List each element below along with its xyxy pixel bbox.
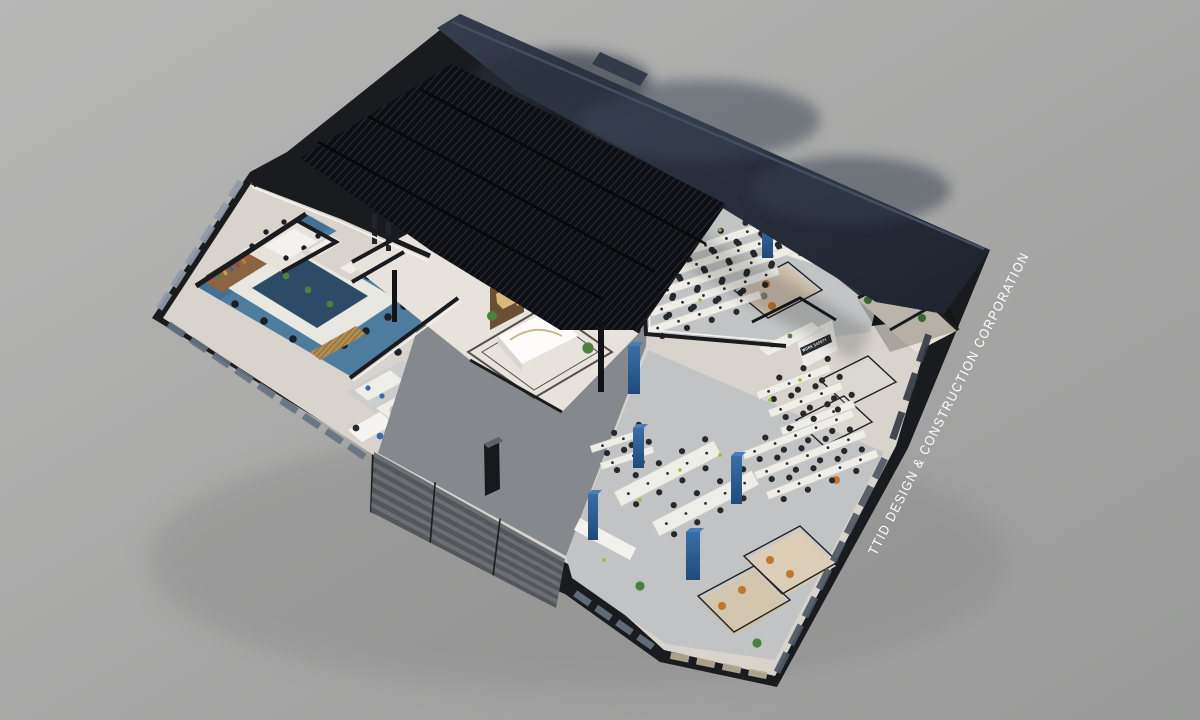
roof-texture: [750, 156, 950, 224]
office-chair: [835, 406, 841, 412]
pod-chair-tan: [718, 602, 726, 610]
desk-monitor: [660, 308, 663, 311]
office-chair: [702, 436, 708, 442]
office-chair: [853, 468, 859, 474]
blue-column: [633, 428, 644, 468]
render-canvas: WORK SAFETY: [0, 0, 1200, 720]
desk-monitor: [835, 418, 838, 421]
desk-monitor: [777, 490, 780, 493]
blue-column: [588, 494, 598, 540]
sofa-cushion: [365, 385, 370, 390]
office-chair: [837, 374, 843, 380]
pod-chair-tan: [786, 570, 794, 578]
office-chair: [819, 377, 825, 383]
office-chair: [769, 261, 775, 267]
office-chair: [783, 414, 789, 420]
desk-plant-accent: [638, 498, 642, 502]
office-chair: [694, 490, 700, 496]
desk-monitor: [815, 426, 818, 429]
desk-monitor: [832, 410, 835, 413]
office-chair: [786, 425, 792, 431]
office-chair: [611, 430, 617, 436]
office-chair: [795, 387, 801, 393]
desk-monitor: [774, 442, 777, 445]
desk-monitor: [665, 522, 668, 525]
desk-plant-accent: [718, 228, 722, 232]
office-chair: [798, 445, 804, 451]
desk-monitor: [656, 327, 659, 330]
office-chair: [614, 467, 620, 473]
meeting-chair: [283, 255, 288, 260]
office-chair: [666, 312, 672, 318]
desk-monitor: [740, 299, 743, 302]
office-chair: [702, 465, 708, 471]
office-chair: [835, 456, 841, 462]
office-chair: [633, 472, 639, 478]
desk-monitor: [808, 374, 811, 377]
desk-monitor: [746, 230, 749, 233]
sofa-cushion: [379, 393, 384, 398]
desk-monitor: [839, 466, 842, 469]
desk-chair: [353, 425, 360, 432]
office-chair: [849, 392, 855, 398]
desk-monitor: [622, 437, 625, 440]
desk-monitor: [786, 462, 789, 465]
boardroom-chair: [289, 335, 297, 343]
desk-monitor: [698, 313, 701, 316]
desk-monitor: [820, 392, 823, 395]
pergola-post: [598, 322, 604, 392]
office-chair: [762, 435, 768, 441]
office-chair: [788, 393, 794, 399]
office-chair: [810, 465, 816, 471]
desk-monitor: [601, 444, 604, 447]
office-chair: [679, 448, 685, 454]
desk-monitor: [818, 474, 821, 477]
office-chair: [694, 519, 700, 525]
desk-monitor: [758, 242, 761, 245]
facade-plant: [635, 581, 644, 590]
desk-monitor: [685, 512, 688, 515]
office-chair: [831, 395, 837, 401]
desk-monitor: [806, 454, 809, 457]
desk-plant-accent: [678, 468, 682, 472]
desk-monitor: [704, 502, 707, 505]
desk-monitor: [687, 282, 690, 285]
office-chair: [715, 296, 721, 302]
office-chair: [717, 478, 723, 484]
facade-plant: [752, 638, 761, 647]
office-chair: [805, 437, 811, 443]
reception-plant: [582, 342, 593, 353]
office-chair: [817, 457, 823, 463]
office-chair: [824, 401, 830, 407]
office-chair: [781, 496, 787, 502]
office-chair: [656, 489, 662, 495]
desk-monitor: [765, 470, 768, 473]
office-chair: [633, 501, 639, 507]
office-chair: [847, 426, 853, 432]
office-chair: [684, 325, 690, 331]
desk-monitor: [702, 294, 705, 297]
office-chair: [733, 239, 739, 245]
meeting-chair: [263, 229, 268, 234]
office-chair: [691, 304, 697, 310]
blue-desk-chair: [377, 433, 384, 440]
counter-plant: [788, 334, 793, 339]
office-chair: [750, 250, 756, 256]
office-chair: [829, 477, 835, 483]
desk-monitor: [779, 408, 782, 411]
office-chair: [656, 460, 662, 466]
office-chair: [769, 476, 775, 482]
office-chair: [776, 375, 782, 381]
office-chair: [811, 416, 817, 422]
office-chair: [671, 502, 677, 508]
boardroom-chair: [231, 300, 239, 308]
office-chair: [823, 436, 829, 442]
desk-plant-accent: [602, 558, 606, 562]
office-chair: [709, 317, 715, 323]
office-chair: [829, 428, 835, 434]
office-chair: [805, 487, 811, 493]
office-chair: [670, 293, 676, 299]
desk-monitor: [743, 482, 746, 485]
desk-monitor: [767, 390, 770, 393]
desk-monitor: [627, 492, 630, 495]
pod-chair-tan: [766, 556, 774, 564]
pod-chair-tan: [738, 586, 746, 594]
desk-monitor: [794, 434, 797, 437]
blue-column: [686, 532, 700, 580]
desk-monitor: [724, 492, 727, 495]
reception-plant: [487, 311, 497, 321]
office-chair: [774, 455, 780, 461]
office-chair: [621, 447, 627, 453]
office-chair: [800, 365, 806, 371]
desk-monitor: [788, 382, 791, 385]
office-chair: [733, 309, 739, 315]
desk-plant-accent: [798, 378, 802, 382]
desk-monitor: [677, 320, 680, 323]
pergola-post: [392, 270, 397, 322]
desk-monitor: [753, 450, 756, 453]
isometric-office-render: WORK SAFETY: [0, 0, 1200, 720]
desk-monitor: [705, 452, 708, 455]
office-chair: [781, 447, 787, 453]
desk-monitor: [719, 306, 722, 309]
desk-monitor: [847, 438, 850, 441]
desk-monitor: [859, 458, 862, 461]
office-chair: [695, 285, 701, 291]
office-chair: [825, 356, 831, 362]
desk-monitor: [798, 482, 801, 485]
blue-column: [731, 456, 742, 504]
office-chair: [793, 467, 799, 473]
desk-plant-accent: [698, 298, 702, 302]
desk-monitor: [827, 446, 830, 449]
office-chair: [859, 446, 865, 452]
desk-monitor: [647, 482, 650, 485]
office-chair: [807, 405, 813, 411]
meeting-chair: [281, 219, 286, 224]
office-chair: [604, 450, 610, 456]
desk-monitor: [611, 461, 614, 464]
desk-plant-accent: [718, 453, 722, 457]
office-chair: [786, 475, 792, 481]
office-chair: [679, 477, 685, 483]
office-chair: [800, 411, 806, 417]
office-chair: [671, 531, 677, 537]
desk-plant-accent: [768, 398, 772, 402]
desk-monitor: [686, 462, 689, 465]
office-chair: [717, 507, 723, 513]
desk-monitor: [681, 301, 684, 304]
office-chair: [841, 448, 847, 454]
boardroom-chair: [260, 317, 268, 325]
office-chair: [812, 383, 818, 389]
desk-monitor: [666, 472, 669, 475]
boardroom-chair: [384, 313, 392, 321]
office-chair: [757, 456, 763, 462]
blue-column: [628, 346, 640, 394]
desk-monitor: [725, 237, 728, 240]
desk-monitor: [800, 400, 803, 403]
office-chair: [646, 439, 652, 445]
